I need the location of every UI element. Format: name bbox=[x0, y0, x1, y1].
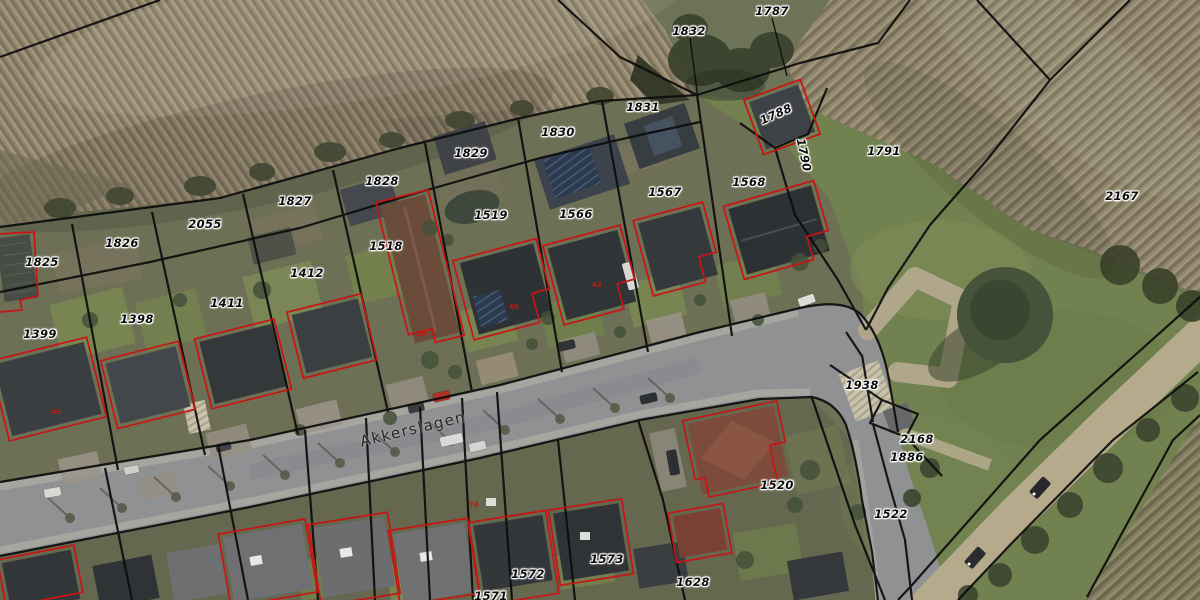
aerial-imagery bbox=[0, 0, 1200, 600]
aerial-map[interactable]: 1787183218311830182918281827205518261825… bbox=[0, 0, 1200, 600]
